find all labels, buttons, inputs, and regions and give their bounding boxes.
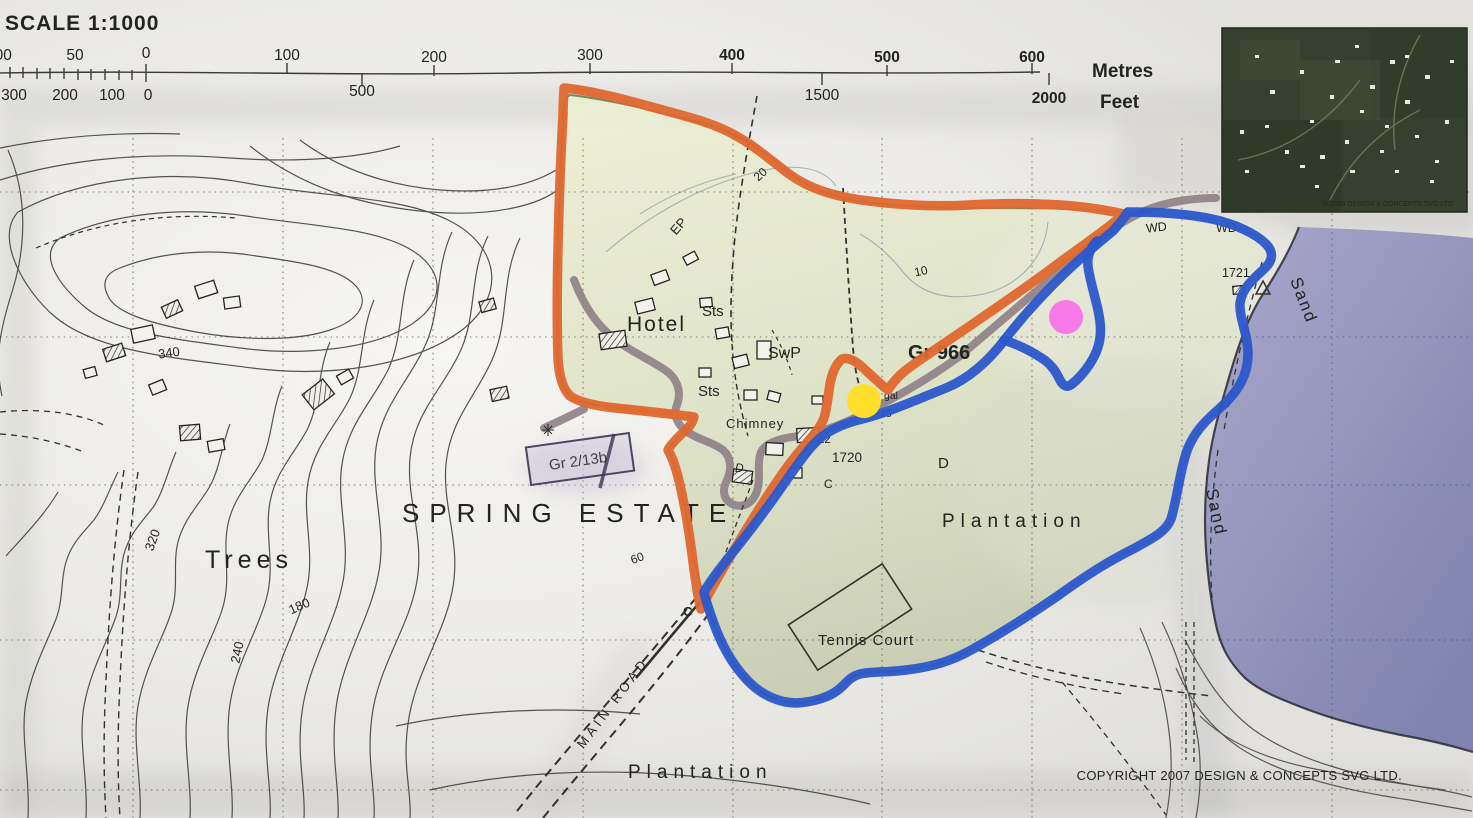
scale-baseline [0, 72, 1040, 74]
label-letter-d-plantation: D [938, 455, 949, 472]
label-1721: 1721 [1222, 266, 1250, 280]
contour-label-60: 60 [629, 549, 647, 567]
scale-f-1500: 1500 [805, 87, 840, 104]
stamp-grid-ref: Gr 2/13b [523, 433, 647, 495]
marker-dot-yellow [847, 384, 881, 418]
scale-f-left-200: 200 [52, 87, 78, 104]
scale-m-left-50: 50 [66, 47, 84, 64]
scale-f-left-0: 0 [144, 87, 153, 104]
contour-label-340: 340 [157, 344, 181, 362]
label-sts-lower: Sts [698, 383, 720, 400]
label-letter-d-road: D [735, 461, 744, 475]
copyright-text: COPYRIGHT 2007 DESIGN & CONCEPTS SVG LTD… [1077, 768, 1402, 783]
marker-dot-magenta [1049, 300, 1083, 334]
scale-metres-unit: Metres [1092, 61, 1153, 82]
label-sts-upper: Sts [702, 303, 724, 320]
label-hotel: Hotel [627, 313, 686, 336]
label-chimney: Chimney [726, 416, 784, 431]
scale-f-left-300: 300 [1, 87, 27, 104]
label-trees: Trees [205, 546, 293, 574]
aerial-inset-photo: © 2006 DESIGN & CONCEPTS SVG LTD [1222, 28, 1467, 212]
contour-label-320: 320 [142, 527, 164, 553]
scale-m-100: 100 [274, 47, 300, 64]
scale-ticks-feet [362, 73, 1049, 85]
label-letter-c-tip: C [683, 604, 693, 619]
scale-m-200: 200 [421, 49, 447, 66]
contour-label-240: 240 [227, 640, 246, 664]
scale-f-2000: 2000 [1032, 90, 1066, 107]
map-sheet: Gr 2/13b SPRING ESTATE Trees Plantation … [0, 0, 1473, 818]
scanned-map-photo: Gr 2/13b SPRING ESTATE Trees Plantation … [0, 0, 1473, 818]
label-plantation-south: Plantation [628, 762, 773, 783]
label-wd-west: WD [1145, 219, 1167, 235]
scale-feet-unit: Feet [1100, 92, 1140, 113]
scale-m-left-100: 100 [0, 47, 12, 64]
scale-m-left-0: 0 [142, 45, 151, 62]
label-letter-c-road: C [824, 477, 833, 491]
contour-label-180: 180 [286, 595, 312, 618]
scale-m-500: 500 [874, 49, 900, 66]
inset-caption: © 2006 DESIGN & CONCEPTS SVG LTD [1323, 200, 1453, 208]
label-tennis-court: Tennis Court [818, 632, 914, 649]
label-swp: SwP [768, 345, 801, 362]
scale-m-300: 300 [577, 47, 603, 64]
scale-m-400: 400 [719, 47, 745, 64]
scale-f-left-100: 100 [99, 87, 125, 104]
scale-f-500: 500 [349, 83, 375, 100]
label-plantation-east: Plantation [942, 511, 1087, 532]
label-1720: 1720 [832, 450, 862, 465]
scale-m-600: 600 [1019, 49, 1045, 66]
scale-title: SCALE 1:1000 [5, 12, 159, 35]
